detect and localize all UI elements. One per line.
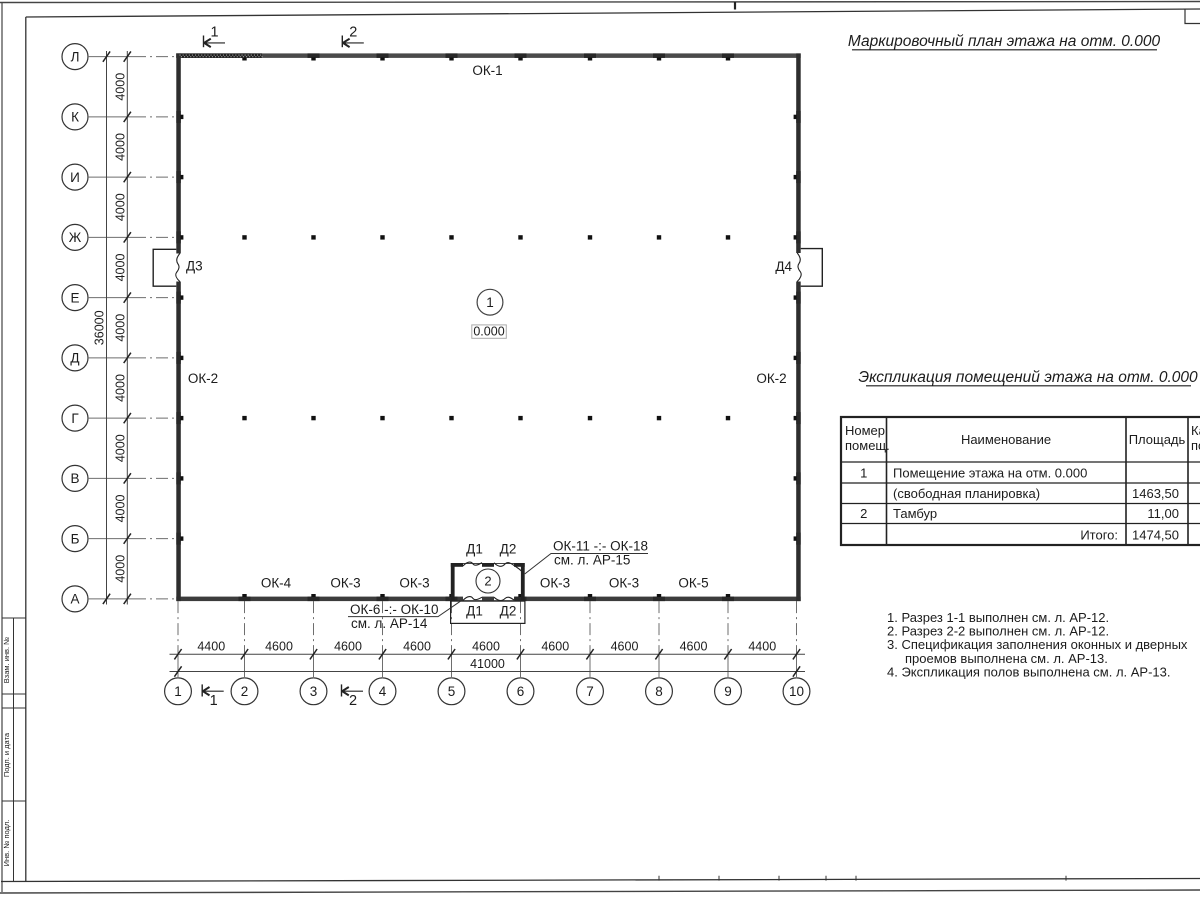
svg-text:4600: 4600 <box>680 639 708 653</box>
svg-text:4000: 4000 <box>113 193 127 221</box>
svg-text:Д4: Д4 <box>775 259 792 274</box>
svg-text:ОК-3: ОК-3 <box>330 576 360 591</box>
svg-text:Д2: Д2 <box>500 542 517 557</box>
svg-text:3: 3 <box>310 684 318 699</box>
svg-text:В: В <box>70 471 79 486</box>
svg-text:ОК-11 -:- ОК-18: ОК-11 -:- ОК-18 <box>553 539 648 554</box>
svg-text:ОК-4: ОК-4 <box>261 576 292 591</box>
svg-text:2: 2 <box>484 574 491 589</box>
svg-text:1: 1 <box>486 295 494 310</box>
svg-text:Ка: Ка <box>1191 423 1200 438</box>
svg-text:1: 1 <box>860 465 867 480</box>
svg-text:6: 6 <box>517 684 525 699</box>
svg-text:Д3: Д3 <box>186 259 203 274</box>
svg-text:ОК-3: ОК-3 <box>609 576 639 591</box>
svg-text:ОК-5: ОК-5 <box>678 576 708 591</box>
svg-text:4600: 4600 <box>611 639 639 653</box>
svg-text:Тамбур: Тамбур <box>893 506 937 521</box>
svg-text:Д2: Д2 <box>500 604 517 619</box>
svg-text:ОК-3: ОК-3 <box>399 576 429 591</box>
svg-text:Д1: Д1 <box>466 542 483 557</box>
svg-text:4. Экспликация полов выполнена: 4. Экспликация полов выполнена см. л. АР… <box>887 664 1171 679</box>
svg-text:4000: 4000 <box>113 434 127 462</box>
svg-text:9: 9 <box>724 684 732 699</box>
svg-text:1474,50: 1474,50 <box>1132 527 1179 542</box>
svg-text:по: по <box>1191 438 1200 453</box>
svg-text:ОК-2: ОК-2 <box>756 371 786 386</box>
svg-text:8: 8 <box>655 684 663 699</box>
svg-text:7: 7 <box>586 684 594 699</box>
svg-text:4600: 4600 <box>403 639 431 653</box>
svg-text:4000: 4000 <box>113 314 127 342</box>
svg-text:Д: Д <box>70 351 79 366</box>
svg-text:ОК-2: ОК-2 <box>188 371 218 386</box>
svg-text:10: 10 <box>789 684 804 699</box>
svg-text:41000: 41000 <box>470 657 505 671</box>
svg-text:Инв. № подл.: Инв. № подл. <box>2 820 11 867</box>
svg-text:4000: 4000 <box>113 73 127 101</box>
svg-text:2: 2 <box>241 684 249 699</box>
svg-text:2: 2 <box>349 25 357 41</box>
svg-text:4000: 4000 <box>113 374 127 402</box>
svg-text:4000: 4000 <box>113 495 127 523</box>
svg-text:4600: 4600 <box>472 639 500 653</box>
svg-text:Взам. инв. №: Взам. инв. № <box>2 637 11 683</box>
svg-text:4000: 4000 <box>113 133 127 161</box>
svg-text:4600: 4600 <box>334 639 362 653</box>
svg-text:ОК-6 -:- ОК-10: ОК-6 -:- ОК-10 <box>350 602 439 617</box>
svg-text:Площадь: Площадь <box>1129 432 1186 447</box>
svg-text:1: 1 <box>174 684 182 699</box>
svg-text:5: 5 <box>448 684 456 699</box>
svg-text:1: 1 <box>210 693 218 709</box>
svg-text:Маркировочный план этажа на от: Маркировочный план этажа на отм. 0.000 <box>848 33 1161 50</box>
svg-text:Помещение этажа на отм. 0.000: Помещение этажа на отм. 0.000 <box>893 465 1087 480</box>
svg-text:Е: Е <box>70 290 79 305</box>
svg-text:А: А <box>70 592 79 607</box>
svg-text:см. л. АР-14: см. л. АР-14 <box>351 616 428 631</box>
svg-text:Ж: Ж <box>69 230 82 245</box>
svg-text:помещ.: помещ. <box>845 438 890 453</box>
svg-text:4600: 4600 <box>265 639 293 653</box>
svg-text:Д1: Д1 <box>466 604 483 619</box>
svg-text:11,00: 11,00 <box>1147 506 1179 521</box>
svg-text:Подп. и дата: Подп. и дата <box>2 732 11 777</box>
svg-text:(свободная планировка): (свободная планировка) <box>893 486 1040 501</box>
svg-text:4400: 4400 <box>748 639 776 653</box>
svg-text:4400: 4400 <box>197 639 225 653</box>
svg-text:ОК-1: ОК-1 <box>472 63 502 78</box>
svg-text:1463,50: 1463,50 <box>1132 486 1179 501</box>
svg-text:4600: 4600 <box>541 639 569 653</box>
svg-text:4000: 4000 <box>113 254 127 282</box>
svg-text:Л: Л <box>71 49 80 64</box>
svg-text:И: И <box>70 170 80 185</box>
svg-text:2: 2 <box>349 693 357 709</box>
svg-text:ОК-3: ОК-3 <box>540 576 570 591</box>
svg-text:Номер: Номер <box>845 423 885 438</box>
svg-text:2: 2 <box>860 506 867 521</box>
svg-text:4000: 4000 <box>113 555 127 583</box>
svg-text:Г: Г <box>71 411 79 426</box>
svg-text:см. л. АР-15: см. л. АР-15 <box>554 553 630 568</box>
svg-text:Наименование: Наименование <box>961 432 1051 447</box>
svg-text:1: 1 <box>210 25 218 41</box>
svg-text:0.000: 0.000 <box>473 325 504 339</box>
svg-text:Итого:: Итого: <box>1080 527 1118 542</box>
svg-text:Б: Б <box>71 531 80 546</box>
svg-text:36000: 36000 <box>92 310 106 345</box>
svg-text:4: 4 <box>379 684 387 699</box>
svg-text:Экспликация помещений этажа на: Экспликация помещений этажа на отм. 0.00… <box>858 369 1198 386</box>
svg-text:К: К <box>71 110 79 125</box>
